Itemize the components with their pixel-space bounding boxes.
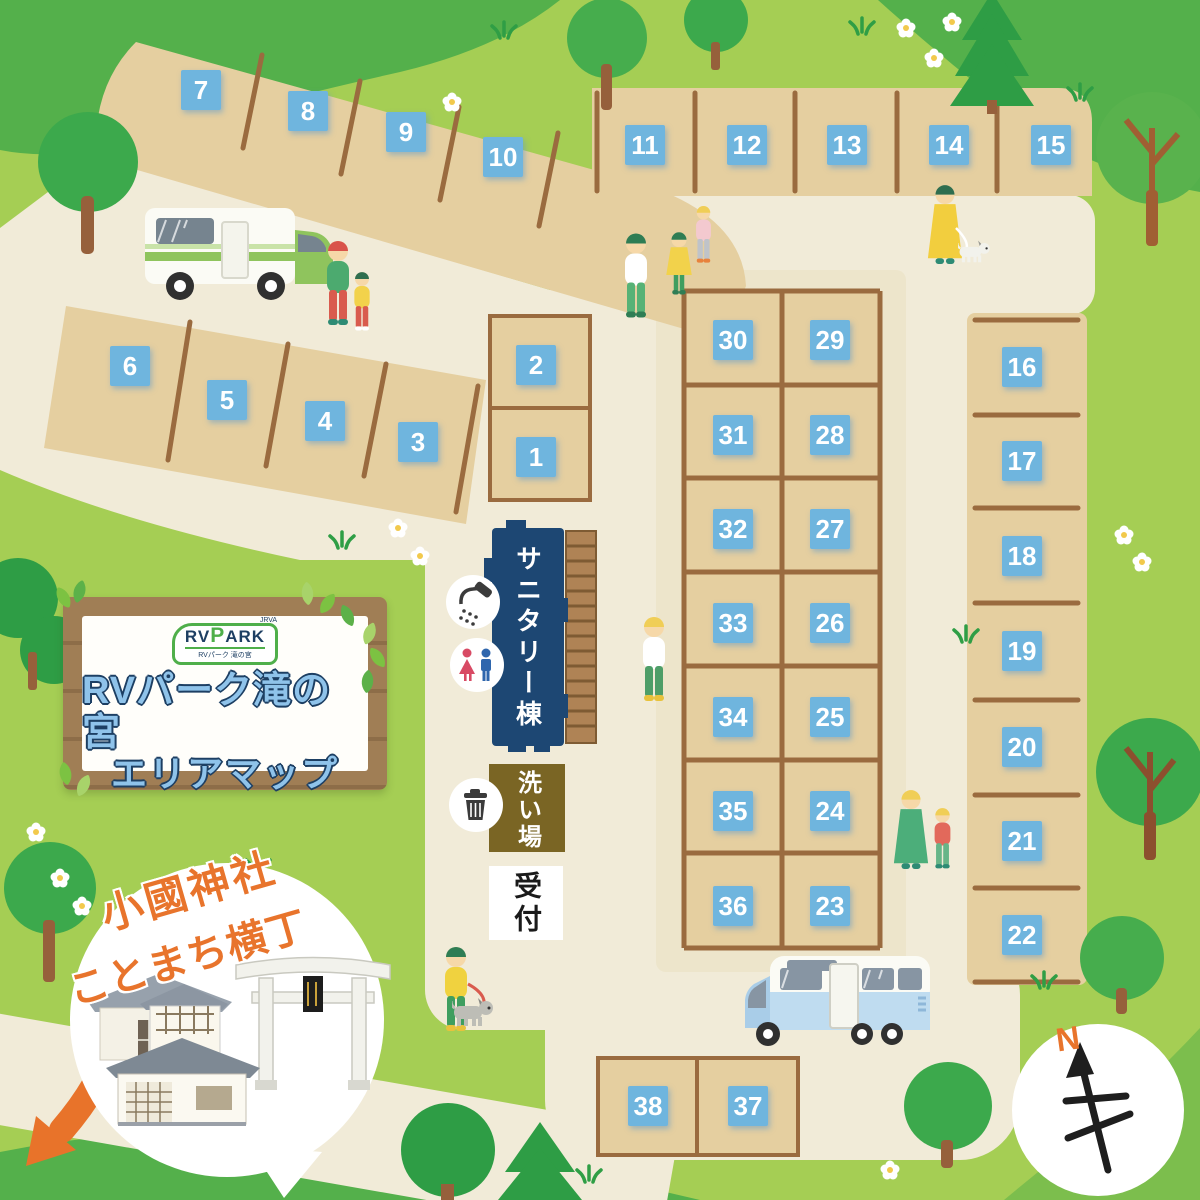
flower-icon [443, 93, 462, 112]
lot-tag-32: 32 [713, 509, 753, 549]
rv-park-area-map: 1 2 3 4 5 6 7 8 9 10 11 12 13 14 15 16 1… [0, 0, 1200, 1200]
lot-tag-19: 19 [1002, 631, 1042, 671]
lot-tag-18: 18 [1002, 536, 1042, 576]
lot-tag-20: 20 [1002, 727, 1042, 767]
map-title-line1: RVパーク滝の宮 [82, 670, 368, 754]
tree [684, 0, 748, 70]
lot-tag-15: 15 [1031, 125, 1071, 165]
compass-north-label: N [1053, 1019, 1082, 1060]
lot-tag-2: 2 [516, 345, 556, 385]
lot-tag-35: 35 [713, 791, 753, 831]
lot-tag-7: 7 [181, 70, 221, 110]
lot-tag-21: 21 [1002, 821, 1042, 861]
lot-tag-23: 23 [810, 886, 850, 926]
tree [1096, 92, 1200, 246]
ivy-leaf [318, 594, 338, 614]
lot-tag-37: 37 [728, 1086, 768, 1126]
ivy-leaf [368, 648, 388, 668]
washing-area-label: 洗い場 [491, 768, 563, 852]
lot-tag-9: 9 [386, 112, 426, 152]
lot-tag-31: 31 [713, 415, 753, 455]
logo-subtitle: RVパーク 滝の宮 [185, 647, 265, 660]
sanitary-building-label: サニタリー棟 [494, 536, 562, 740]
lot-tag-8: 8 [288, 91, 328, 131]
lot-tag-27: 27 [810, 509, 850, 549]
lot-tag-14: 14 [929, 125, 969, 165]
lot-tag-29: 29 [810, 320, 850, 360]
lot-tag-34: 34 [713, 697, 753, 737]
compass [1012, 1024, 1184, 1196]
tree [1080, 916, 1164, 1014]
lot-tag-3: 3 [398, 422, 438, 462]
park-sign: JRVA RVPARK RVパーク 滝の宮 RVパーク滝の宮 エリアマップ [63, 597, 387, 790]
lot-tag-30: 30 [713, 320, 753, 360]
lot-tag-4: 4 [305, 401, 345, 441]
flower-icon [1133, 553, 1152, 572]
sign-paper: JRVA RVPARK RVパーク 滝の宮 RVパーク滝の宮 エリアマップ [82, 616, 368, 771]
lot-tag-17: 17 [1002, 441, 1042, 481]
lot-tag-28: 28 [810, 415, 850, 455]
lot-tag-26: 26 [810, 603, 850, 643]
rv-park-logo: JRVA RVPARK RVパーク 滝の宮 [172, 623, 278, 665]
lot-tag-6: 6 [110, 346, 150, 386]
lot-tag-38: 38 [628, 1086, 668, 1126]
tree [1096, 718, 1200, 860]
lot-tag-10: 10 [483, 137, 523, 177]
lot-tag-25: 25 [810, 697, 850, 737]
logo-wordmark: RVPARK [185, 627, 265, 646]
lot-tag-24: 24 [810, 791, 850, 831]
flower-icon [881, 1161, 900, 1180]
logo-jrva-label: JRVA [260, 617, 277, 624]
lot-tag-13: 13 [827, 125, 867, 165]
lot-tag-22: 22 [1002, 915, 1042, 955]
lot-tag-12: 12 [727, 125, 767, 165]
lot-tag-5: 5 [207, 380, 247, 420]
reception-label: 受付 [491, 868, 561, 940]
map-title-line2: エリアマップ [111, 754, 339, 794]
lot-tag-1: 1 [516, 437, 556, 477]
lot-tag-36: 36 [713, 886, 753, 926]
flower-icon [27, 823, 46, 842]
lot-tag-33: 33 [713, 603, 753, 643]
flower-icon [1115, 526, 1134, 545]
lot-tag-11: 11 [625, 125, 665, 165]
lot-tag-16: 16 [1002, 347, 1042, 387]
